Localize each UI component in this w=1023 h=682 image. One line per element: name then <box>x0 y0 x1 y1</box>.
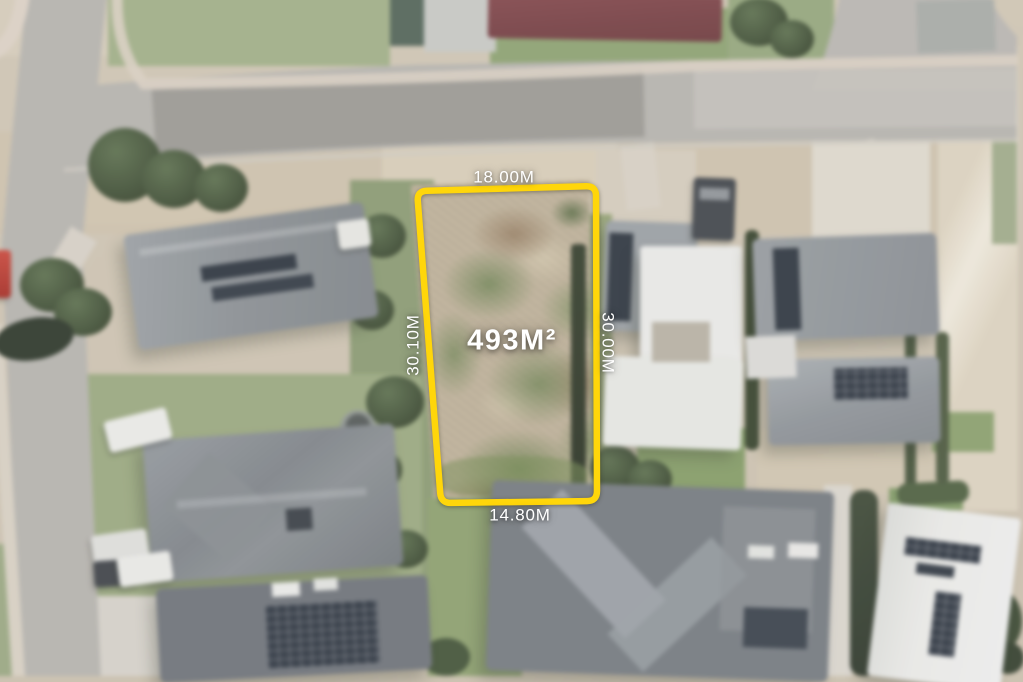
dimension-label-top: 18.00M <box>473 169 535 186</box>
dimension-label-bottom: 14.80M <box>489 507 551 524</box>
dimension-label-right: 30.00M <box>600 312 617 374</box>
property-aerial-photo: 18.00M 30.10M 30.00M 14.80M 493M² <box>0 0 1023 682</box>
dimension-label-left: 30.10M <box>405 314 422 376</box>
lot-area-label: 493M² <box>467 327 557 356</box>
